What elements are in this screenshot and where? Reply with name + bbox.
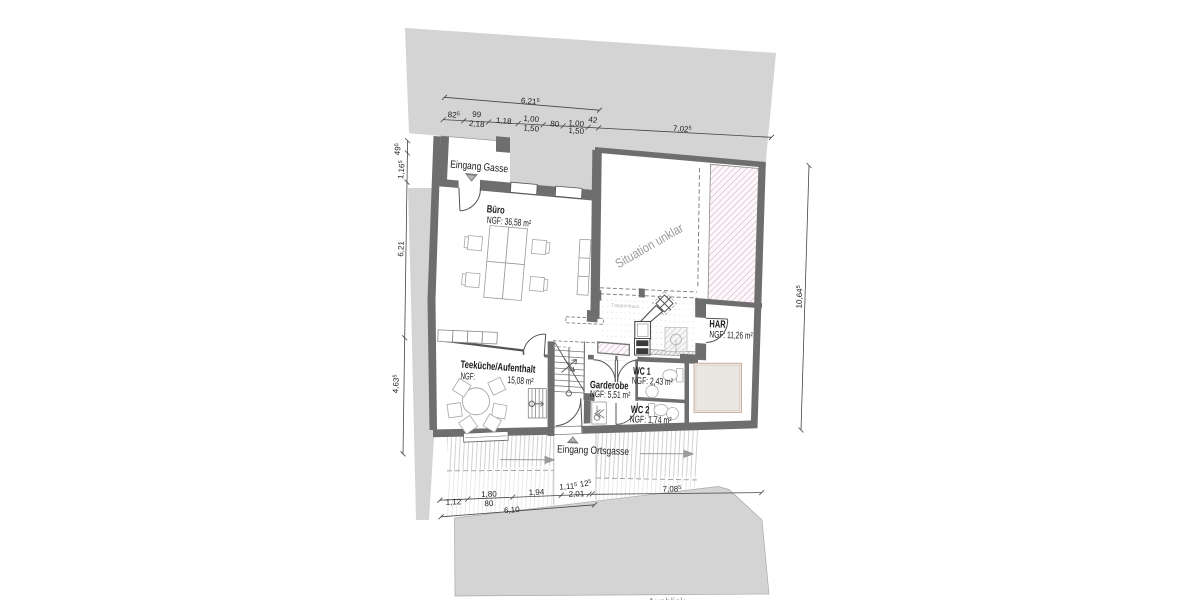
svg-text:42: 42 <box>588 115 599 125</box>
svg-text:NGF: 2,43 m²: NGF: 2,43 m² <box>632 376 674 388</box>
svg-text:1,94: 1,94 <box>528 488 544 498</box>
svg-text:1,12: 1,12 <box>445 497 461 507</box>
svg-text:Eingang Ortsgasse: Eingang Ortsgasse <box>557 444 629 459</box>
svg-text:80: 80 <box>550 119 560 129</box>
svg-text:1,50: 1,50 <box>523 123 540 133</box>
svg-text:6,10: 6,10 <box>504 505 521 515</box>
svg-text:2,01: 2,01 <box>568 489 584 499</box>
svg-text:15,08 m²: 15,08 m² <box>507 375 534 388</box>
svg-text:NGF: 5,51 m²: NGF: 5,51 m² <box>590 389 631 401</box>
svg-text:80: 80 <box>484 499 494 508</box>
svg-text:NGF:: NGF: <box>460 371 475 383</box>
svg-text:1,80: 1,80 <box>481 489 497 499</box>
svg-text:1,50: 1,50 <box>568 126 585 136</box>
svg-text:1,18: 1,18 <box>496 116 513 126</box>
svg-text:2,18: 2,18 <box>469 119 486 129</box>
svg-text:NGF: 1,74 m²: NGF: 1,74 m² <box>629 414 672 426</box>
svg-text:10,645: 10,645 <box>795 285 805 308</box>
svg-text:6,21: 6,21 <box>396 240 406 257</box>
svg-text:NGF: 11,26 m²: NGF: 11,26 m² <box>709 330 753 343</box>
svg-text:99: 99 <box>472 110 482 120</box>
